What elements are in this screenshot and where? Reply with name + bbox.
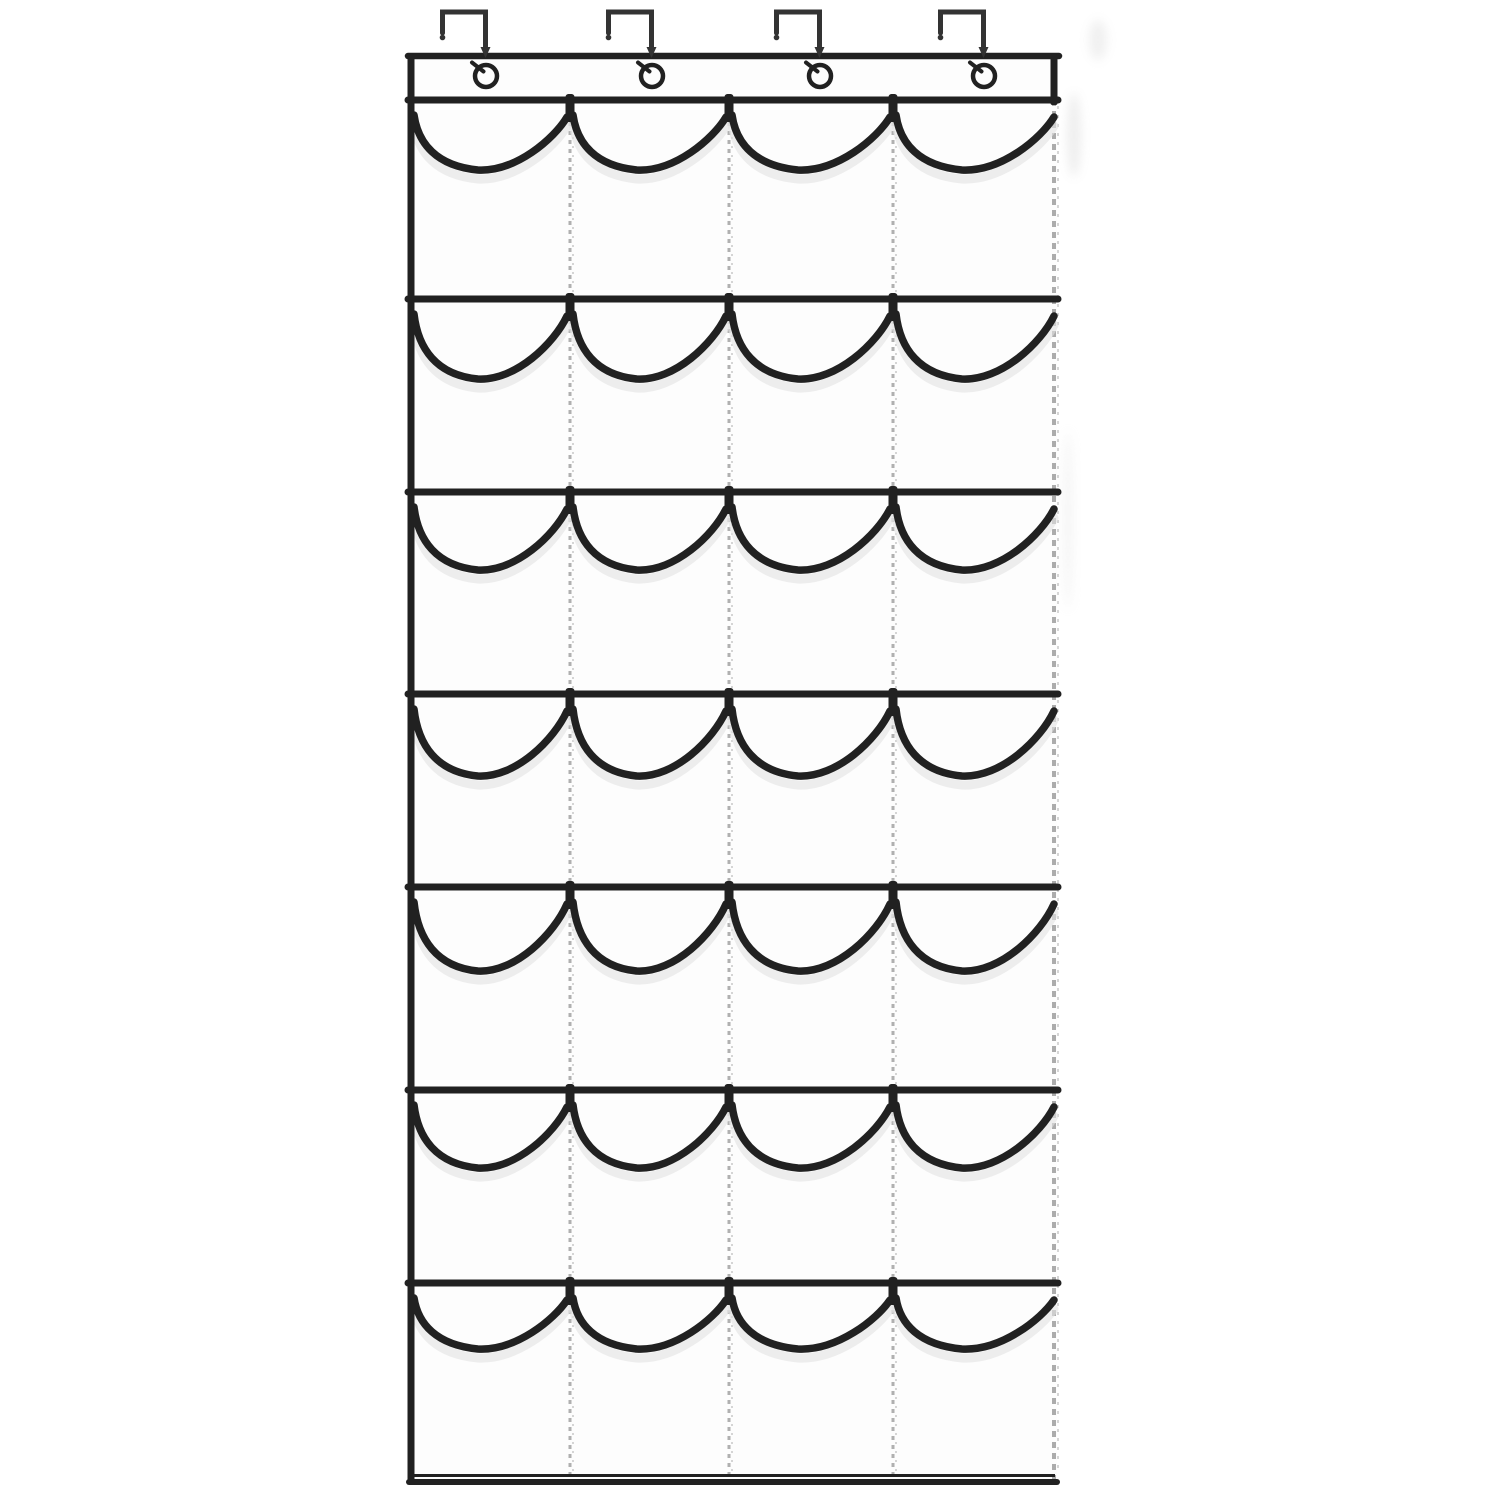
seam-nub — [725, 486, 734, 514]
hook-door-end — [774, 35, 780, 41]
seam-nub — [889, 1277, 898, 1305]
hook-wire — [777, 12, 820, 49]
seam-nub — [566, 1277, 575, 1305]
hook-wire — [941, 12, 984, 49]
hook-door-end — [440, 35, 446, 41]
seam-nub — [889, 881, 898, 909]
seam-nub — [889, 293, 898, 321]
seam-nub — [725, 881, 734, 909]
seam-nub — [889, 688, 898, 716]
seam-nub — [566, 688, 575, 716]
seam-nub — [566, 94, 575, 122]
seam-nub — [725, 94, 734, 122]
hook-wire — [443, 12, 486, 49]
seam-nub — [725, 1277, 734, 1305]
shading-smudge — [1089, 20, 1107, 60]
seam-nub — [725, 1084, 734, 1112]
seam-nub — [889, 486, 898, 514]
over-door-hook — [606, 12, 657, 58]
shading-smudge — [1063, 430, 1073, 610]
seam-nub — [725, 293, 734, 321]
panel-left-edge — [408, 54, 415, 1484]
shading-smudge — [1067, 93, 1081, 177]
over-door-hook — [440, 12, 491, 58]
hook-door-end — [606, 35, 612, 41]
seam-nub — [725, 688, 734, 716]
seam-nub — [566, 881, 575, 909]
hook-wire — [609, 12, 652, 49]
hook-door-end — [938, 35, 944, 41]
seam-nub — [889, 1084, 898, 1112]
seam-nub — [566, 293, 575, 321]
shoe-organizer-illustration — [0, 0, 1500, 1500]
over-door-hook — [774, 12, 825, 58]
seam-nub — [889, 94, 898, 122]
fabric-layer — [411, 20, 1107, 1482]
over-door-hook — [938, 12, 989, 58]
seam-nub — [566, 486, 575, 514]
band-right-edge — [1051, 54, 1058, 105]
product-image-canvas — [0, 0, 1500, 1500]
seam-nub — [566, 1084, 575, 1112]
